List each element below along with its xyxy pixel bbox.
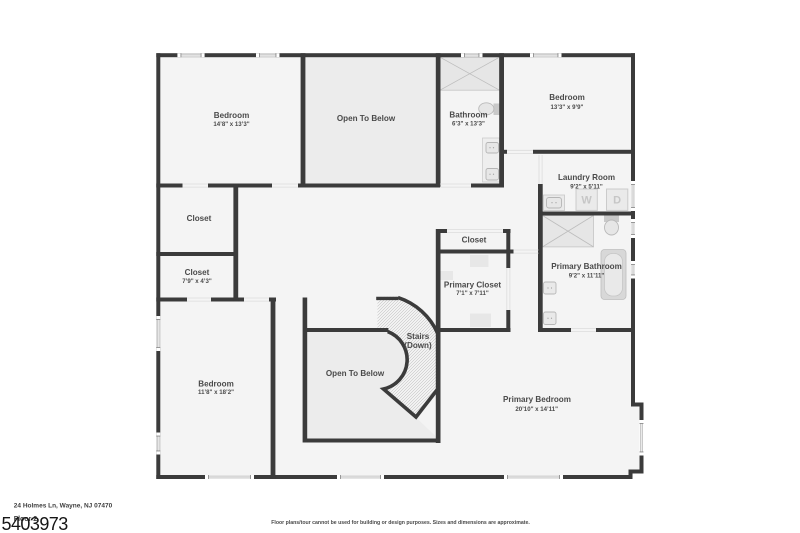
svg-text:Open To Below: Open To Below — [326, 369, 385, 378]
svg-text:Open To Below: Open To Below — [337, 114, 396, 123]
svg-text:Bedroom: Bedroom — [214, 111, 250, 120]
svg-text:Primary Bedroom: Primary Bedroom — [503, 395, 571, 404]
svg-text:Bathroom: Bathroom — [449, 110, 487, 119]
svg-text:13’3" x 9’9": 13’3" x 9’9" — [551, 104, 584, 111]
svg-text:Stairs: Stairs — [407, 332, 430, 341]
svg-text:9’2" x 11’11": 9’2" x 11’11" — [569, 273, 605, 280]
svg-text:W: W — [581, 194, 592, 206]
svg-text:Laundry Room: Laundry Room — [558, 173, 615, 182]
svg-text:7’1" x 7’11": 7’1" x 7’11" — [456, 290, 489, 297]
svg-text:7’9" x 4’3": 7’9" x 4’3" — [182, 278, 212, 285]
svg-text:Closet: Closet — [185, 268, 210, 277]
svg-text:Closet: Closet — [462, 235, 487, 244]
svg-text:Primary Bathroom: Primary Bathroom — [551, 262, 622, 271]
svg-text:6’3" x 13’3": 6’3" x 13’3" — [452, 120, 485, 127]
svg-text:Closet: Closet — [187, 214, 212, 223]
svg-text:9’2" x 5’11": 9’2" x 5’11" — [570, 183, 603, 190]
svg-text:14’8" x 13’3": 14’8" x 13’3" — [213, 121, 249, 128]
svg-text:Bedroom: Bedroom — [198, 379, 234, 388]
svg-text:24 Holmes Ln, Wayne, NJ 07470: 24 Holmes Ln, Wayne, NJ 07470 — [14, 503, 113, 510]
svg-text:Bedroom: Bedroom — [549, 93, 585, 102]
svg-text:11’8" x 18’2": 11’8" x 18’2" — [198, 389, 234, 396]
svg-text:5403973: 5403973 — [2, 514, 69, 533]
svg-text:D: D — [613, 194, 621, 206]
svg-text:Floor plans/tour cannot be use: Floor plans/tour cannot be used for buil… — [271, 520, 530, 526]
svg-text:(Down): (Down) — [404, 341, 432, 350]
svg-text:20’10" x 14’11": 20’10" x 14’11" — [515, 406, 558, 413]
svg-text:Primary Closet: Primary Closet — [444, 281, 501, 290]
